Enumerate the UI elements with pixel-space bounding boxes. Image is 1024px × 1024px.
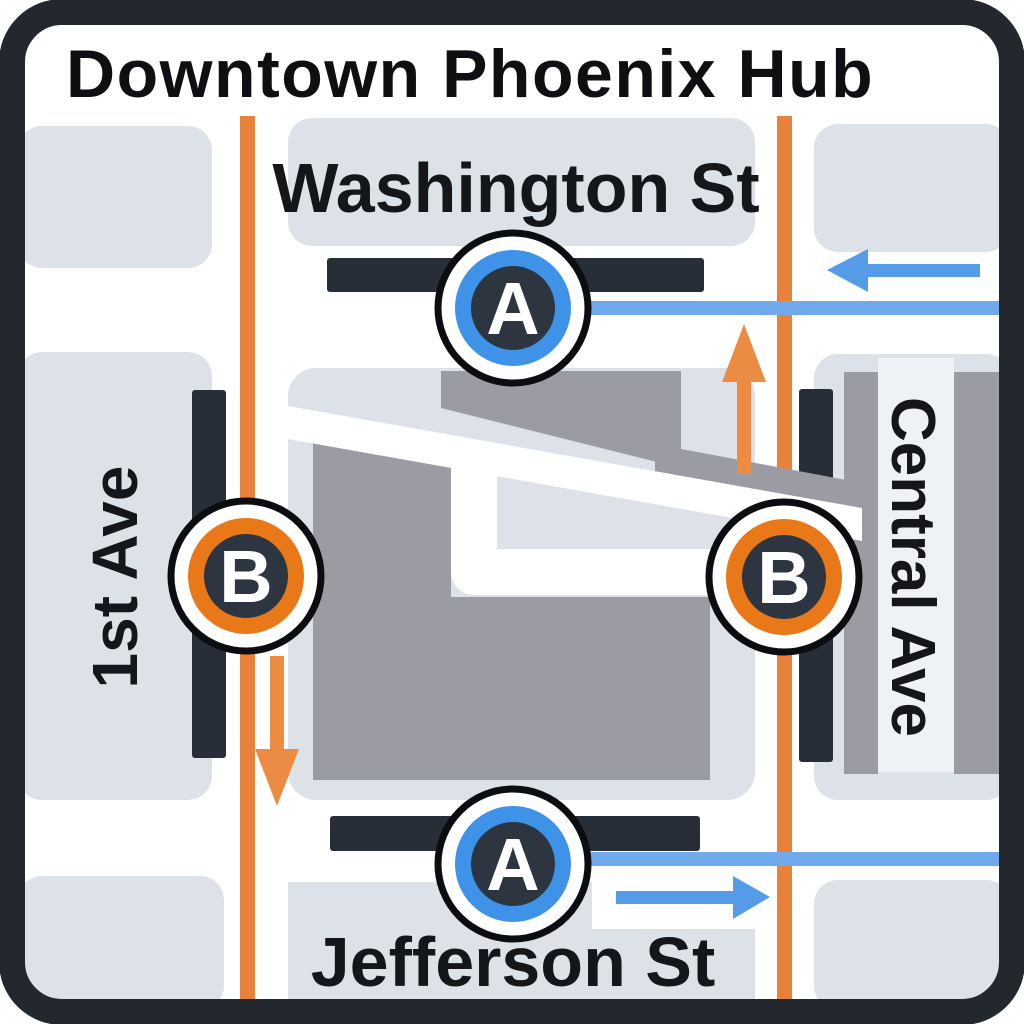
transit-map-poster: A B B A Washington St Jefferson St 1st A…	[0, 0, 1024, 1024]
street-label-jefferson: Jefferson St	[311, 923, 716, 1001]
station-letter: A	[486, 267, 539, 350]
station-marker-a-south[interactable]: A	[438, 789, 588, 939]
station-letter: A	[486, 823, 539, 906]
station-letter: B	[757, 536, 810, 619]
map-canvas: A B B A Washington St Jefferson St 1st A…	[0, 0, 1024, 1024]
city-block-top-left	[18, 126, 212, 268]
street-label-central-ave: Central Ave	[878, 397, 947, 737]
city-block-top-right	[814, 124, 1010, 252]
page-title: Downtown Phoenix Hub	[66, 36, 874, 112]
city-block-bottom-right	[814, 880, 1010, 1010]
street-label-first-ave: 1st Ave	[79, 466, 151, 689]
station-marker-b-east[interactable]: B	[709, 502, 859, 652]
station-letter: B	[219, 535, 272, 618]
station-marker-b-west[interactable]: B	[171, 501, 321, 651]
street-label-washington: Washington St	[272, 149, 759, 227]
city-block-bottom-left	[18, 876, 224, 1010]
station-marker-a-north[interactable]: A	[438, 233, 588, 383]
